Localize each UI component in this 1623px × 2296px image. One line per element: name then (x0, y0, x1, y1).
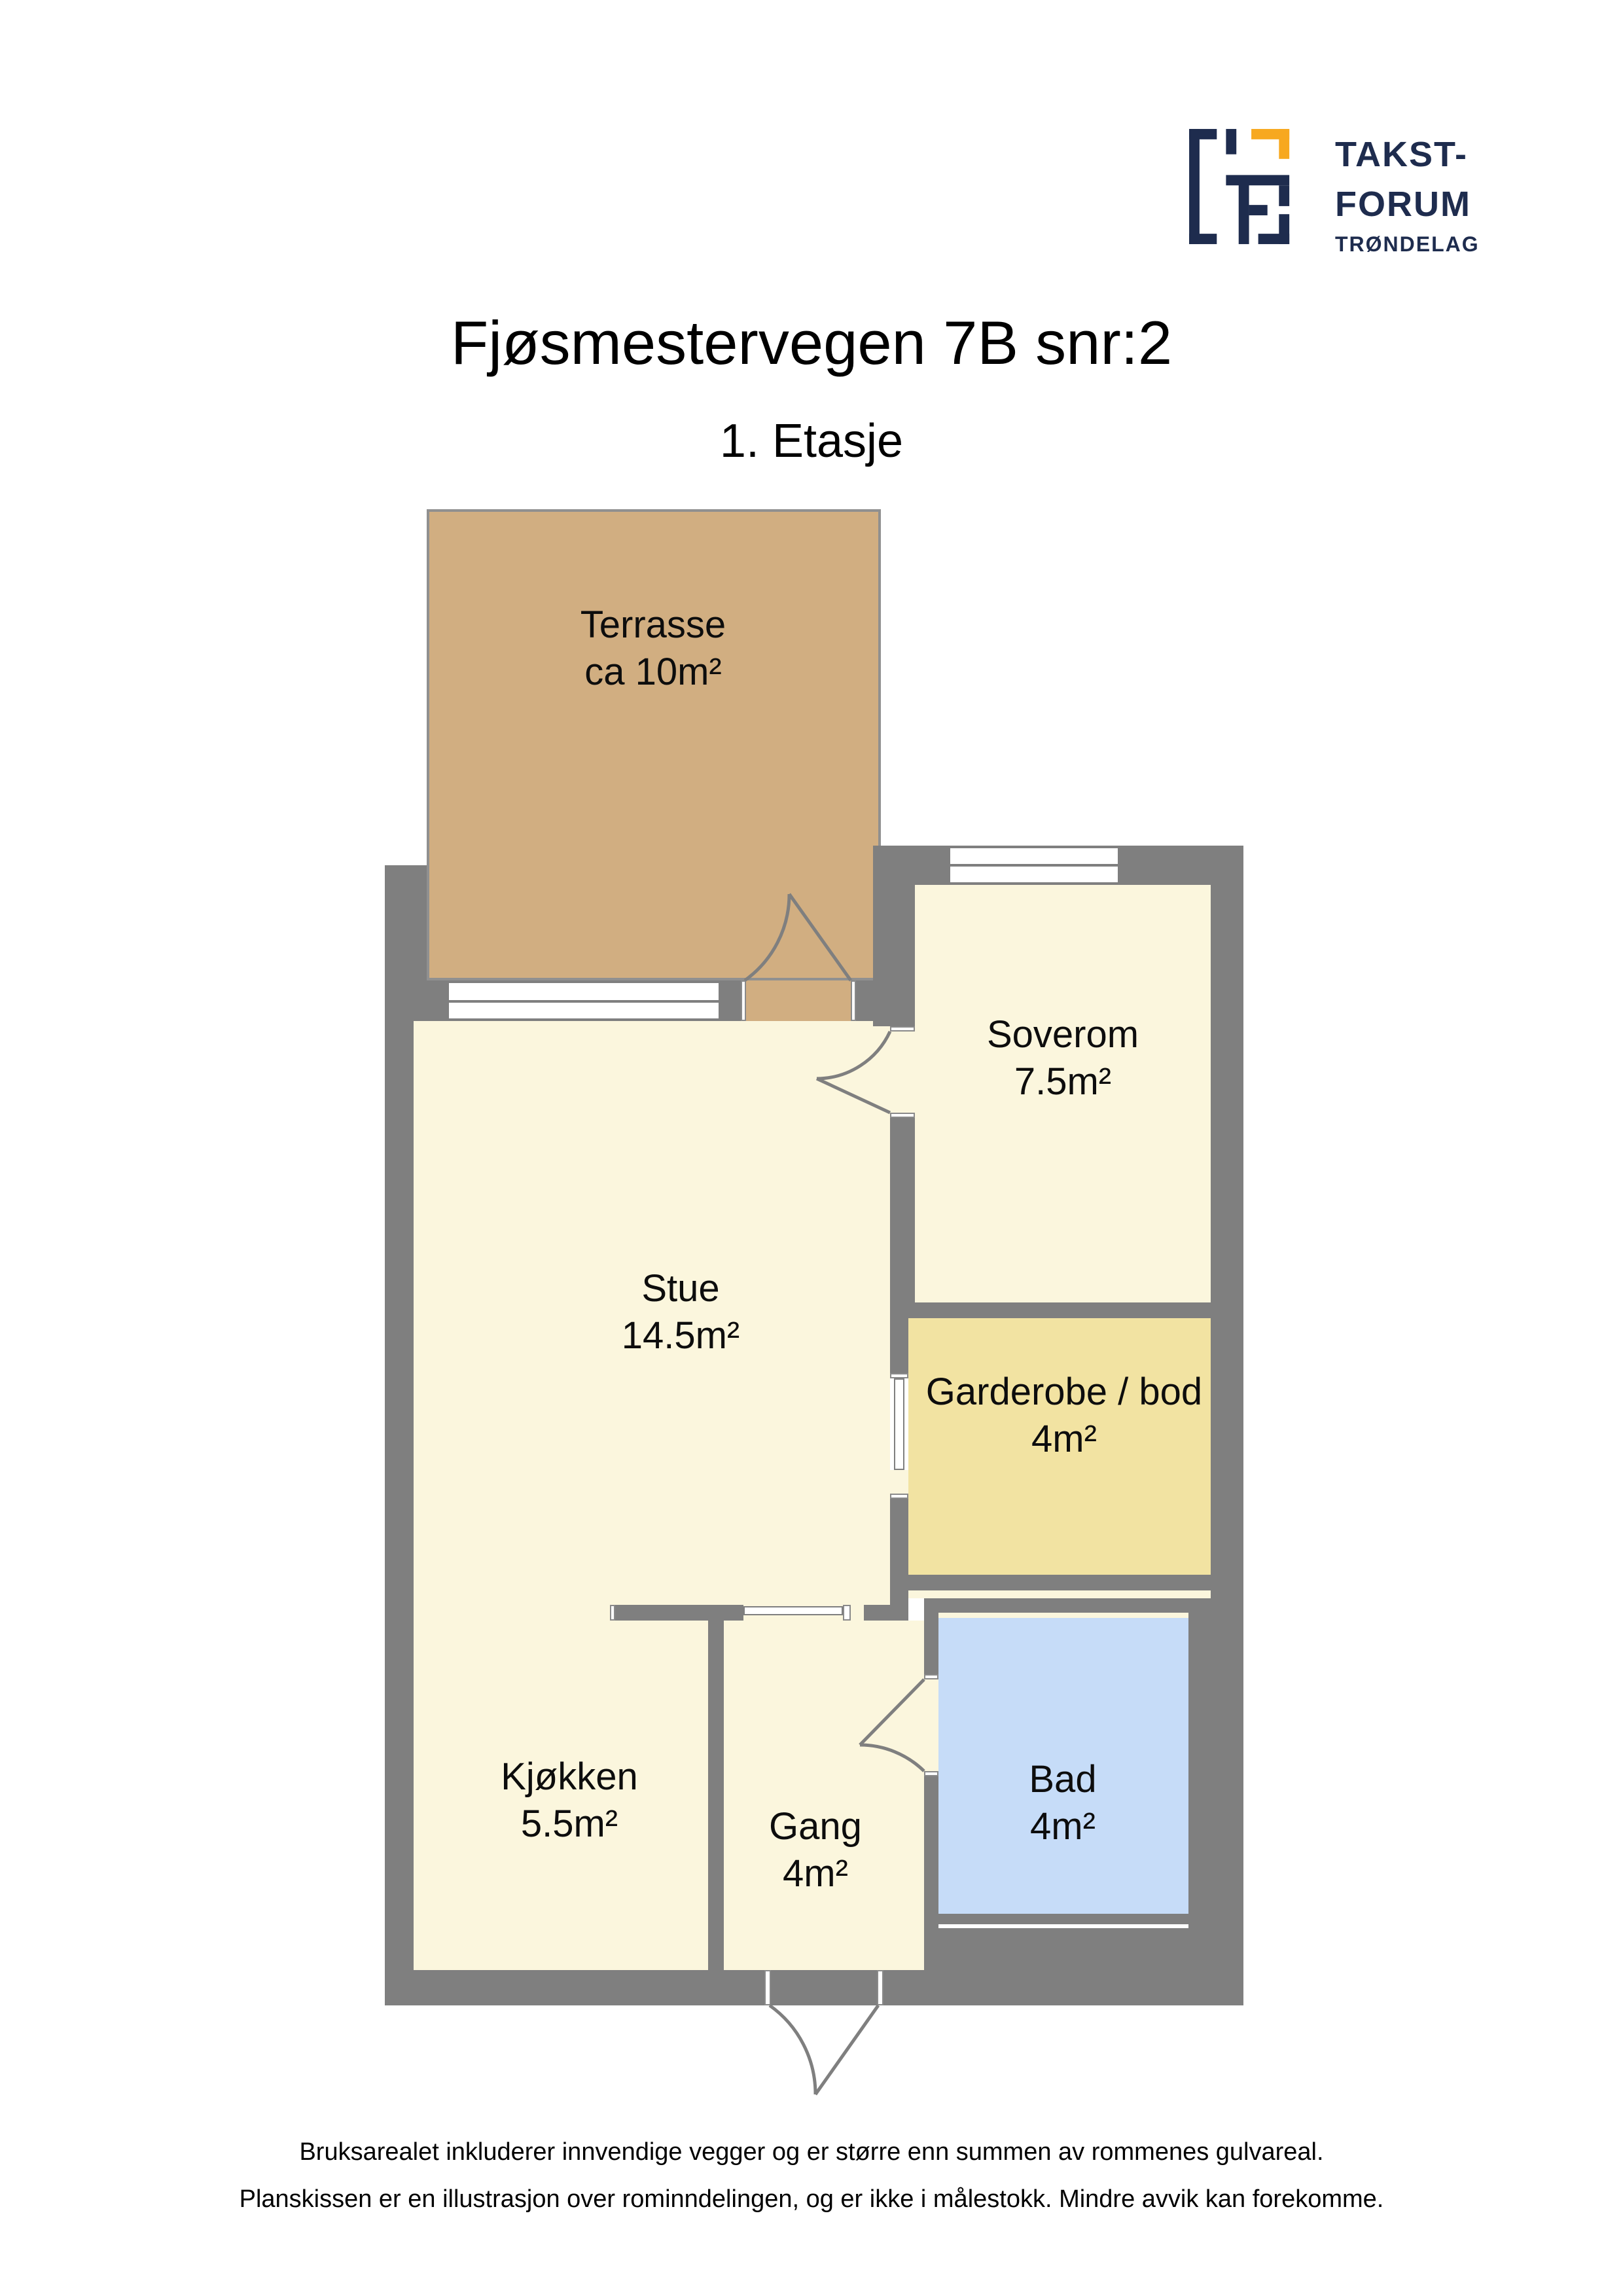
under-bad-joint-line (938, 1924, 1188, 1928)
entry-door (757, 2000, 887, 2102)
garderobe-area: 4m² (842, 1416, 1287, 1463)
bad-floor-edge (924, 1613, 1188, 1618)
garderobe-door-jamb-bottom (890, 1494, 908, 1499)
soverom-window (948, 846, 1120, 885)
bad-area: 4m² (840, 1804, 1285, 1851)
terrace-door-jamb-left (741, 980, 746, 1021)
wall-gang-top-stub (864, 1605, 890, 1621)
soverom-window-mullion (950, 864, 1118, 867)
stue-window (446, 980, 721, 1021)
pocket-door-jamb (843, 1605, 851, 1621)
stue-area: 14.5m² (458, 1313, 903, 1360)
terrasse-area: ca 10m² (431, 649, 876, 696)
pocket-door-panel (743, 1606, 843, 1615)
soverom-area: 7.5m² (840, 1059, 1285, 1106)
floorplan-page: TAKST- FORUM TRØNDELAG Fjøsmestervegen 7… (0, 0, 1623, 2296)
room-label-garderobe: Garderobe / bod 4m² (842, 1369, 1287, 1463)
stue-name: Stue (458, 1266, 903, 1313)
stue-window-mullion (449, 999, 719, 1002)
garderobe-name: Garderobe / bod (842, 1369, 1287, 1416)
footer-note-1: Bruksarealet inkluderer innvendige vegge… (0, 2139, 1623, 2168)
floorplan: Terrasse ca 10m² Stue 14.5m² Soverom 7.5… (0, 0, 1623, 2296)
wall-bad-top (924, 1598, 1211, 1613)
room-label-terrasse: Terrasse ca 10m² (431, 602, 876, 696)
wall-topleft-block (385, 865, 427, 1021)
room-label-soverom: Soverom 7.5m² (840, 1012, 1285, 1106)
room-label-stue: Stue 14.5m² (458, 1266, 903, 1360)
wall-gang-bad-upper (924, 1613, 938, 1674)
room-label-bad: Bad 4m² (840, 1757, 1285, 1851)
bad-name: Bad (840, 1757, 1285, 1804)
niche-strip (908, 1590, 1211, 1598)
soverom-name: Soverom (840, 1012, 1285, 1059)
stue-gang-wall-end (610, 1605, 615, 1621)
garderobe-door-opening (890, 1470, 908, 1494)
wall-stue-gang (614, 1605, 743, 1621)
gang-area: 4m² (593, 1851, 1038, 1898)
footer-note-2: Planskissen er en illustrasjon over romi… (0, 2186, 1623, 2215)
wall-garderobe-bottom (890, 1575, 1211, 1590)
terrasse-name: Terrasse (431, 602, 876, 649)
kjokken-name: Kjøkken (347, 1754, 792, 1801)
wall-garderobe-left-lower (890, 1499, 908, 1575)
wall-under-terrace-left (427, 980, 446, 1021)
wall-soverom-garderobe (890, 1302, 1211, 1318)
terrace-door (733, 872, 864, 983)
wall-right-outer-upper (1211, 846, 1243, 1598)
wall-window-right (721, 980, 741, 1021)
